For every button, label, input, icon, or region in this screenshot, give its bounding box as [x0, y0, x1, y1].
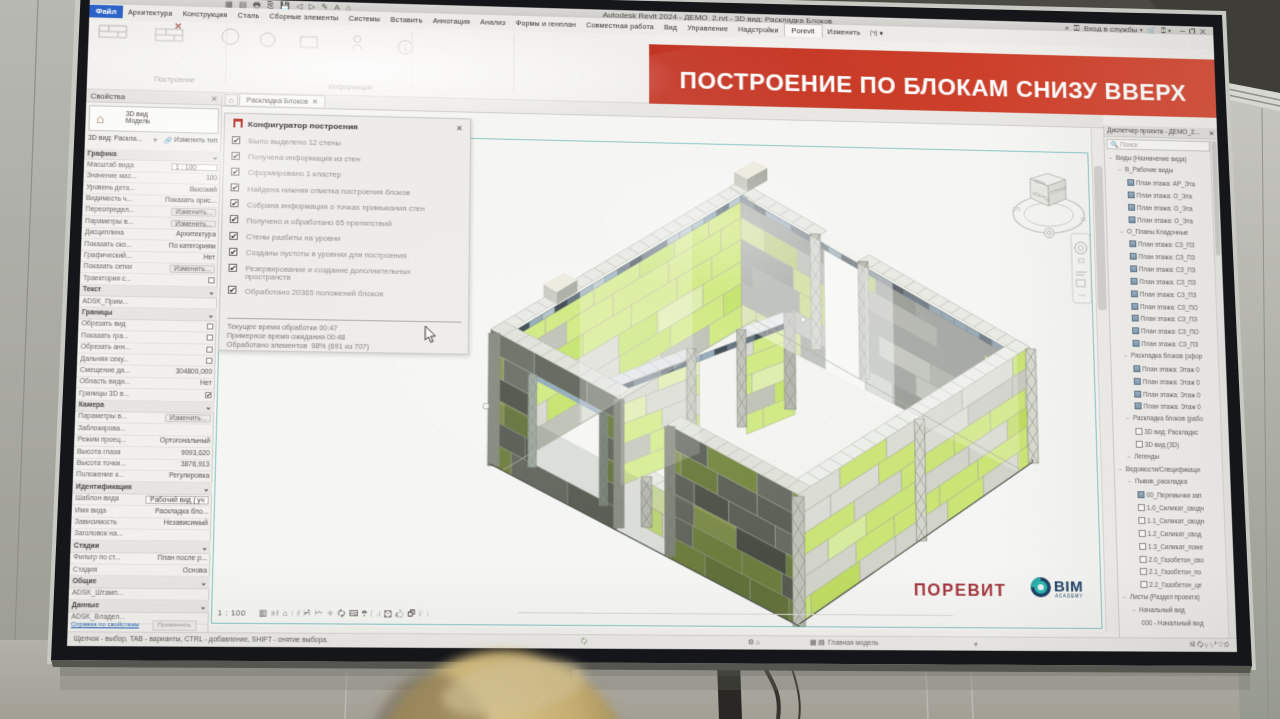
svg-text:90: 90 — [1080, 217, 1086, 223]
svg-text:270: 270 — [1012, 207, 1021, 213]
